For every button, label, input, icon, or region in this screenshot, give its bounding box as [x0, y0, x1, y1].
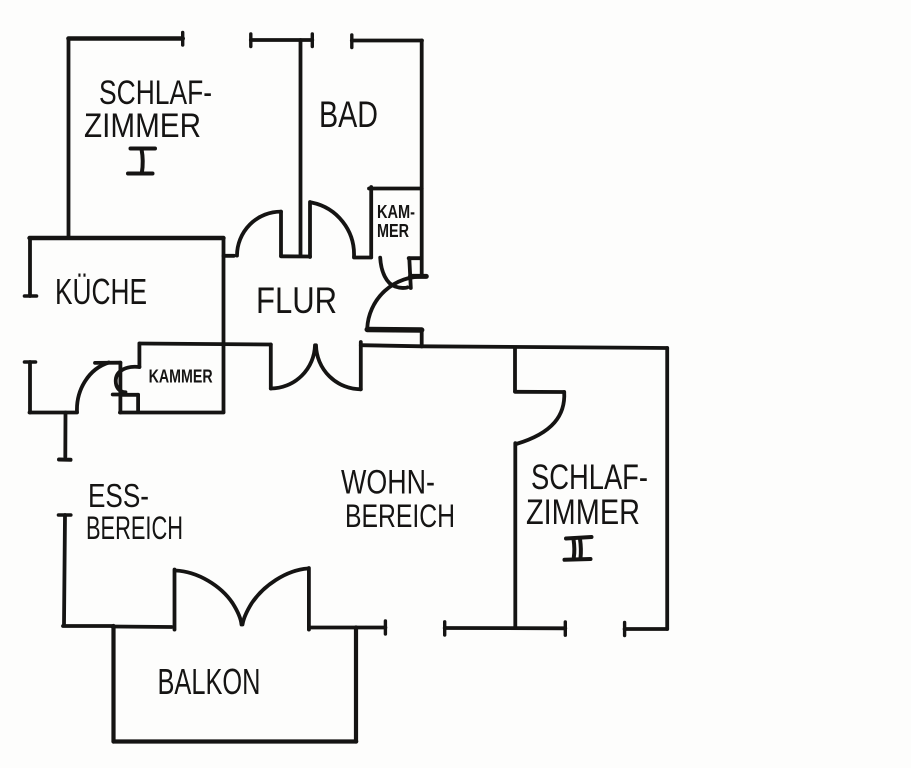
svg-text:KÜCHE: KÜCHE — [55, 271, 147, 312]
svg-text:BEREICH: BEREICH — [345, 498, 455, 534]
svg-text:ESS-: ESS- — [88, 477, 149, 514]
svg-text:BALKON: BALKON — [158, 661, 261, 702]
svg-text:SCHLAF-: SCHLAF- — [531, 458, 648, 497]
svg-text:ZIMMER: ZIMMER — [526, 493, 640, 532]
svg-text:KAM-: KAM- — [377, 202, 415, 222]
svg-text:MER: MER — [377, 221, 409, 241]
svg-text:BAD: BAD — [319, 94, 378, 135]
svg-text:KAMMER: KAMMER — [149, 367, 213, 387]
svg-text:FLUR: FLUR — [256, 280, 337, 321]
svg-text:BEREICH: BEREICH — [86, 510, 183, 546]
svg-text:ZIMMER: ZIMMER — [84, 107, 201, 145]
svg-text:WOHN-: WOHN- — [341, 464, 435, 502]
